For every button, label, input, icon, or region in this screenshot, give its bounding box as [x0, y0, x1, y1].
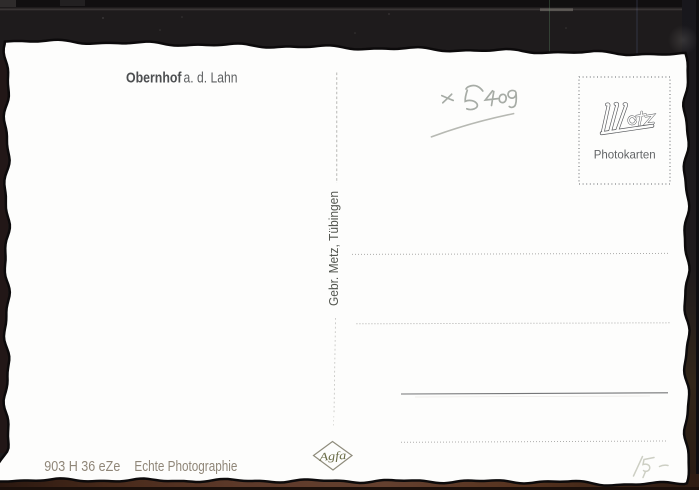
svg-text:Gebr. Metz, Tübingen: Gebr. Metz, Tübingen — [326, 191, 341, 306]
svg-text:903 H 36 eZe: 903 H 36 eZe — [44, 459, 120, 475]
svg-text:Echte Photographie: Echte Photographie — [134, 459, 237, 475]
svg-text:Obernhof: Obernhof — [126, 70, 182, 87]
svg-text:Agfa: Agfa — [318, 450, 347, 464]
svg-text:Photokarten: Photokarten — [594, 147, 656, 161]
svg-text:a. d. Lahn: a. d. Lahn — [184, 71, 238, 87]
